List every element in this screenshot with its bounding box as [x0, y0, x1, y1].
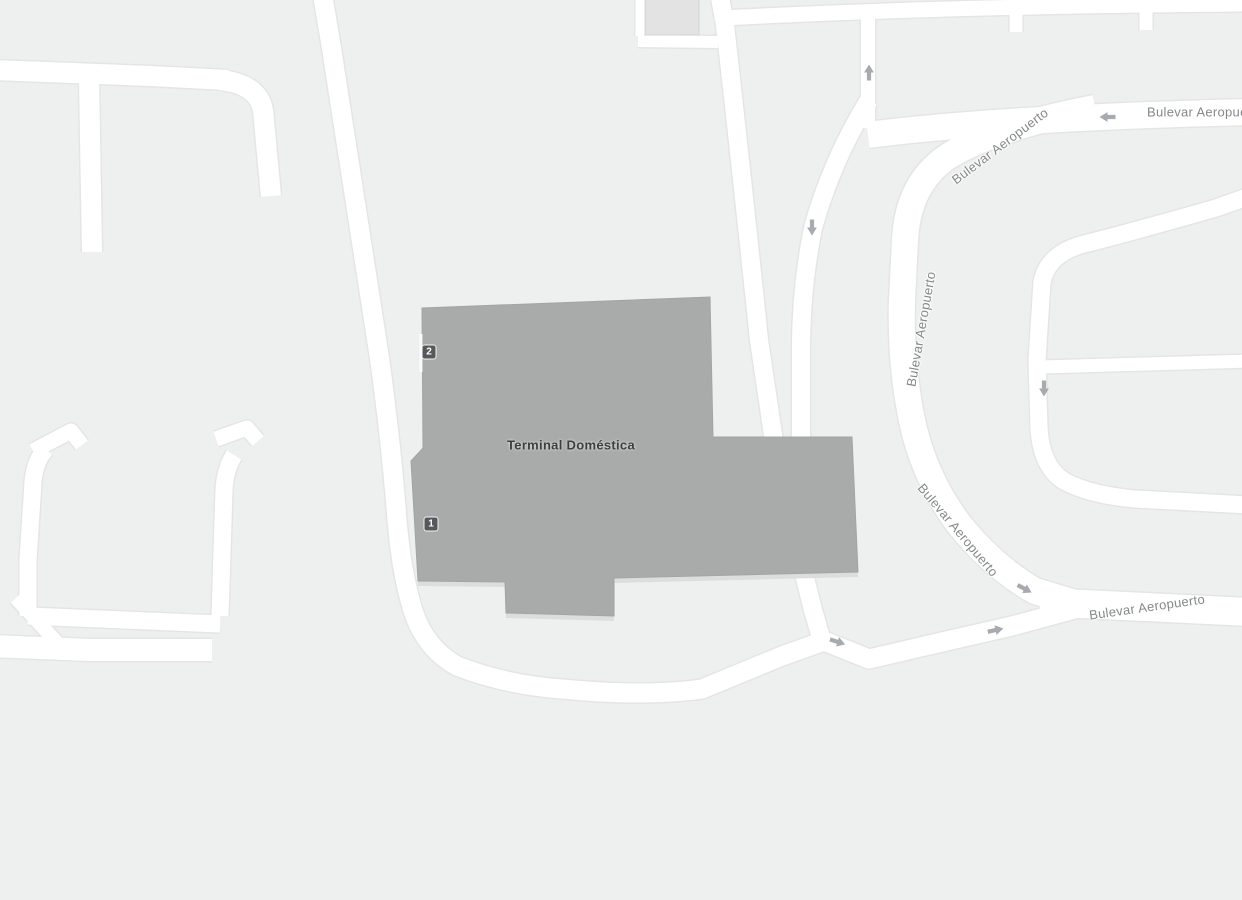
entrance-marker-1[interactable]: 1 [425, 518, 438, 531]
map-canvas[interactable]: Terminal Doméstica 2 1 Bulevar Aeropuert… [0, 0, 1242, 900]
small-building[interactable] [645, 0, 699, 35]
one-way-arrow-up-icon [864, 64, 875, 81]
road-label-bulevar-top-right: Bulevar Aeropuerto [1147, 105, 1242, 120]
one-way-arrow-down-icon [1039, 381, 1050, 398]
entrance-marker-2[interactable]: 2 [423, 346, 436, 359]
building-label: Terminal Doméstica [507, 438, 635, 453]
one-way-arrow-left-icon [1099, 112, 1116, 123]
one-way-arrow-down-icon [807, 220, 818, 237]
